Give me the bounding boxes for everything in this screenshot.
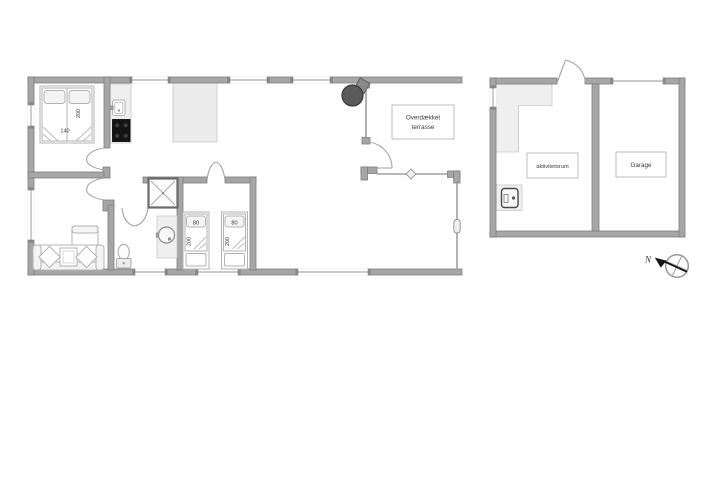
window-left-2	[28, 187, 35, 242]
single-bed-width-label: 80	[231, 221, 237, 227]
annex-wall-top-mid	[585, 78, 613, 84]
worktop-l-shape	[496, 84, 552, 152]
activity-room-label: aktivitetsrum	[527, 153, 578, 178]
terrace-label-box	[392, 105, 454, 139]
window-left-1	[28, 102, 35, 128]
door-arc-bedroom2	[87, 178, 105, 200]
floor-plan-drawing: Overdækket terrasse 140 200	[0, 0, 718, 479]
window-bottom-1	[132, 269, 167, 276]
armchair-back	[72, 226, 98, 233]
stove-cooktop	[113, 120, 131, 142]
window-annex-left	[490, 85, 497, 109]
terrace-label-line2: terrasse	[412, 124, 435, 131]
shower	[149, 179, 178, 208]
main-house: Overdækket terrasse 140 200	[28, 77, 462, 276]
terrace-corner-right-v	[454, 171, 460, 183]
annex-wall-top-left	[490, 78, 557, 84]
wall-bathroom-left	[108, 205, 114, 270]
annex-wall-divider	[592, 84, 599, 231]
window-bottom-2	[195, 269, 240, 276]
wall-bedroom1-right	[104, 77, 110, 148]
terrace-door-arc	[366, 142, 392, 168]
annex-building: aktivitetsrum Garage	[490, 60, 685, 237]
single-bed-width-label: 80	[193, 221, 199, 227]
annex-wall-bottom	[490, 231, 685, 237]
washbasin-bowl	[159, 227, 175, 243]
compass: N	[644, 255, 688, 278]
pillow	[44, 91, 65, 104]
single-bed-length-label: 200	[187, 237, 193, 246]
sofa	[33, 245, 104, 270]
washbasin-tap	[156, 233, 159, 238]
wall-bedroom-divider	[28, 172, 104, 178]
kitchen-sink	[111, 100, 125, 116]
railing-post-capsule	[454, 220, 460, 234]
single-bed-2: 80 200	[222, 212, 248, 269]
window-top-1	[129, 77, 170, 84]
terrace-label-line1: Overdækket	[406, 115, 441, 122]
washing-machine	[502, 189, 519, 208]
terrace-door-hinge-node	[362, 138, 370, 145]
north-label: N	[644, 255, 652, 265]
door-arc-bedroom1	[87, 148, 105, 170]
double-bed-length-label: 200	[76, 109, 82, 118]
toilet	[117, 244, 132, 268]
single-bed-1: 80 200	[183, 212, 209, 269]
window-garage-top	[610, 78, 665, 85]
activity-room-label-text: aktivitetsrum	[536, 164, 569, 170]
single-bed-length-label: 200	[225, 237, 231, 246]
double-bed-width-label: 140	[60, 129, 69, 135]
door-arc-bathroom	[122, 208, 148, 226]
floor-plan-page: Overdækket terrasse 140 200	[0, 0, 718, 479]
bed-foot-box	[225, 254, 245, 267]
double-bed: 140 200	[40, 86, 94, 143]
door-arc-kids-bedroom	[207, 162, 225, 180]
sink-tap	[111, 106, 114, 111]
window-top-3	[290, 77, 332, 84]
railing-post-diamond	[406, 169, 416, 179]
annex-entry-door	[558, 60, 586, 82]
window-top-2	[227, 77, 269, 84]
dining-table	[173, 83, 217, 142]
toilet-bowl	[118, 244, 129, 259]
annex-door-arc	[566, 60, 586, 82]
wood-stove-body	[342, 85, 363, 106]
terrace-corner-left-v	[361, 167, 368, 180]
terrace-label: Overdækket terrasse	[392, 105, 454, 139]
bed-foot-box	[186, 254, 206, 267]
wall-kidsroom-right	[250, 177, 256, 270]
garage-label: Garage	[616, 152, 666, 177]
washbasin	[156, 216, 177, 258]
window-bottom-3	[295, 269, 370, 276]
annex-wall-right	[679, 78, 685, 237]
annex-door-leaf	[558, 60, 566, 82]
north-arrow-head	[655, 258, 667, 268]
pillow	[69, 91, 90, 104]
garage-label-text: Garage	[630, 162, 652, 169]
